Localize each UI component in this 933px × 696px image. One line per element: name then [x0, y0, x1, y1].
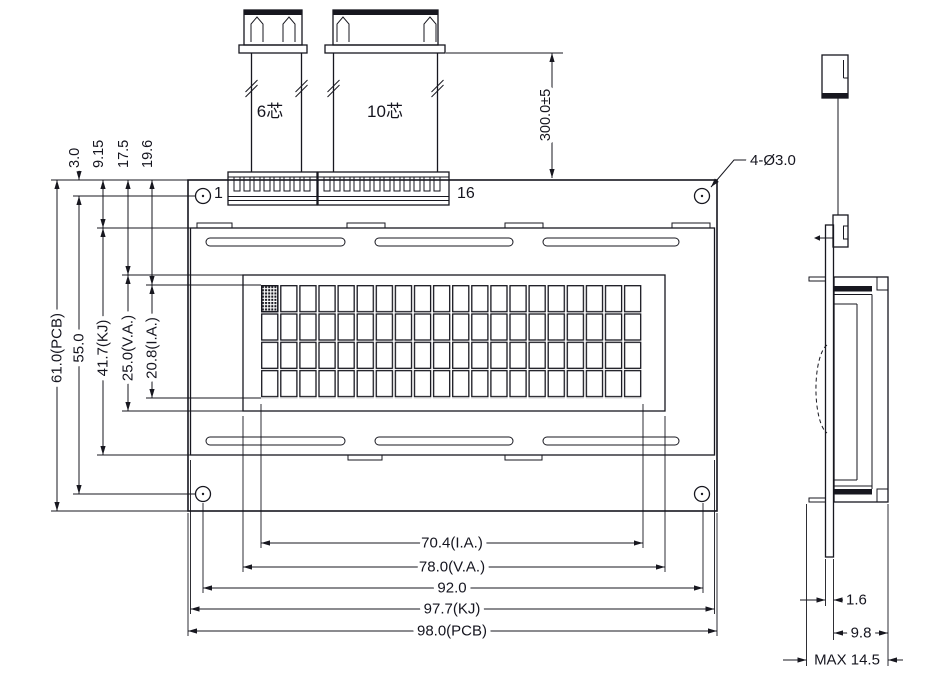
dim-ia-width: 70.4(I.A.): [421, 535, 483, 552]
cable-length-dim: 300.0±5: [446, 53, 563, 178]
dim-bezel-height: 41.7(KJ): [95, 320, 112, 377]
dim-va-height: 25.0(V.A.): [120, 315, 137, 381]
display-area: [243, 275, 665, 411]
dim-module-depth: 9.8: [851, 625, 872, 642]
pin-1-label: 1: [214, 185, 223, 202]
pin-header-6: [228, 172, 317, 205]
bottom-dimensions: 70.4(I.A.) 78.0(V.A.) 92.0 97.7(KJ) 98.0…: [188, 404, 717, 640]
cable-6core: 6芯: [246, 53, 308, 172]
side-polarizer-top: [834, 286, 872, 292]
dim-bezel-width: 97.7(KJ): [424, 601, 481, 618]
dim-pcb-width: 98.0(PCB): [417, 623, 487, 640]
side-view: 1.6 9.8 MAX 14.5: [783, 55, 903, 669]
dim-hole-span-v: 55.0: [71, 333, 88, 362]
lcd-module-dimension-drawing: 1 16 6芯 10芯: [0, 0, 933, 696]
side-bezel-tab-top: [809, 277, 826, 281]
front-view: 1 16 6芯 10芯: [188, 10, 796, 511]
pin-header-10: [318, 172, 449, 205]
connector-10core: [325, 10, 445, 53]
drawing-canvas: 1 16 6芯 10芯: [0, 0, 933, 696]
dim-bezel-offset: 9.15: [91, 140, 107, 168]
dim-pcb-thickness: 1.6: [846, 592, 867, 609]
pin-header-10-teeth: [324, 177, 440, 191]
dim-max-depth: MAX 14.5: [814, 652, 880, 669]
pin-16-label: 16: [457, 185, 475, 202]
side-polarizer-bottom: [834, 489, 872, 495]
side-connector-top: [822, 55, 848, 98]
side-lcd-module: [809, 277, 888, 502]
cable-length-label: 300.0±5: [538, 89, 554, 141]
side-header-housing: [814, 215, 848, 247]
side-bezel-tab-bottom: [809, 498, 826, 502]
connector-6core: [239, 10, 307, 53]
dim-hole-span-h: 92.0: [437, 580, 466, 597]
dim-hole-offset: 3.0: [67, 148, 83, 168]
dim-ia-offset: 19.6: [140, 140, 156, 168]
dot-matrix-first-cell: [262, 286, 277, 311]
dim-pcb-height: 61.0(PCB): [49, 313, 66, 383]
pin-header-6-teeth: [234, 177, 310, 191]
dim-va-offset: 17.5: [116, 140, 132, 168]
cable-6core-label: 6芯: [257, 102, 283, 121]
hole-callout-label: 4-Ø3.0: [750, 152, 796, 169]
hole-callout: 4-Ø3.0: [711, 152, 796, 187]
side-pcb-edge: [826, 225, 834, 557]
cable-10core-label: 10芯: [367, 102, 403, 121]
cable-10core: 10芯: [328, 53, 444, 172]
dim-ia-height: 20.8(I.A.): [144, 317, 161, 379]
character-grid-20x4: [261, 285, 643, 398]
dim-va-width: 78.0(V.A.): [419, 559, 485, 576]
side-dimensions: 1.6 9.8 MAX 14.5: [783, 504, 903, 669]
